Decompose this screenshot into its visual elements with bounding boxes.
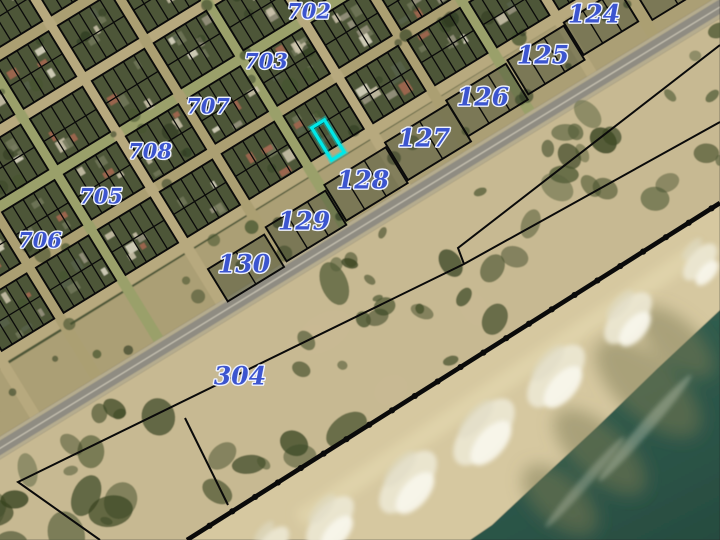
map-viewport[interactable]: 7027037077087057061241251261271281291303… <box>0 0 720 540</box>
satellite-map-canvas[interactable]: 7027037077087057061241251261271281291303… <box>0 0 720 540</box>
map-layers: 7027037077087057061241251261271281291303… <box>0 0 720 540</box>
